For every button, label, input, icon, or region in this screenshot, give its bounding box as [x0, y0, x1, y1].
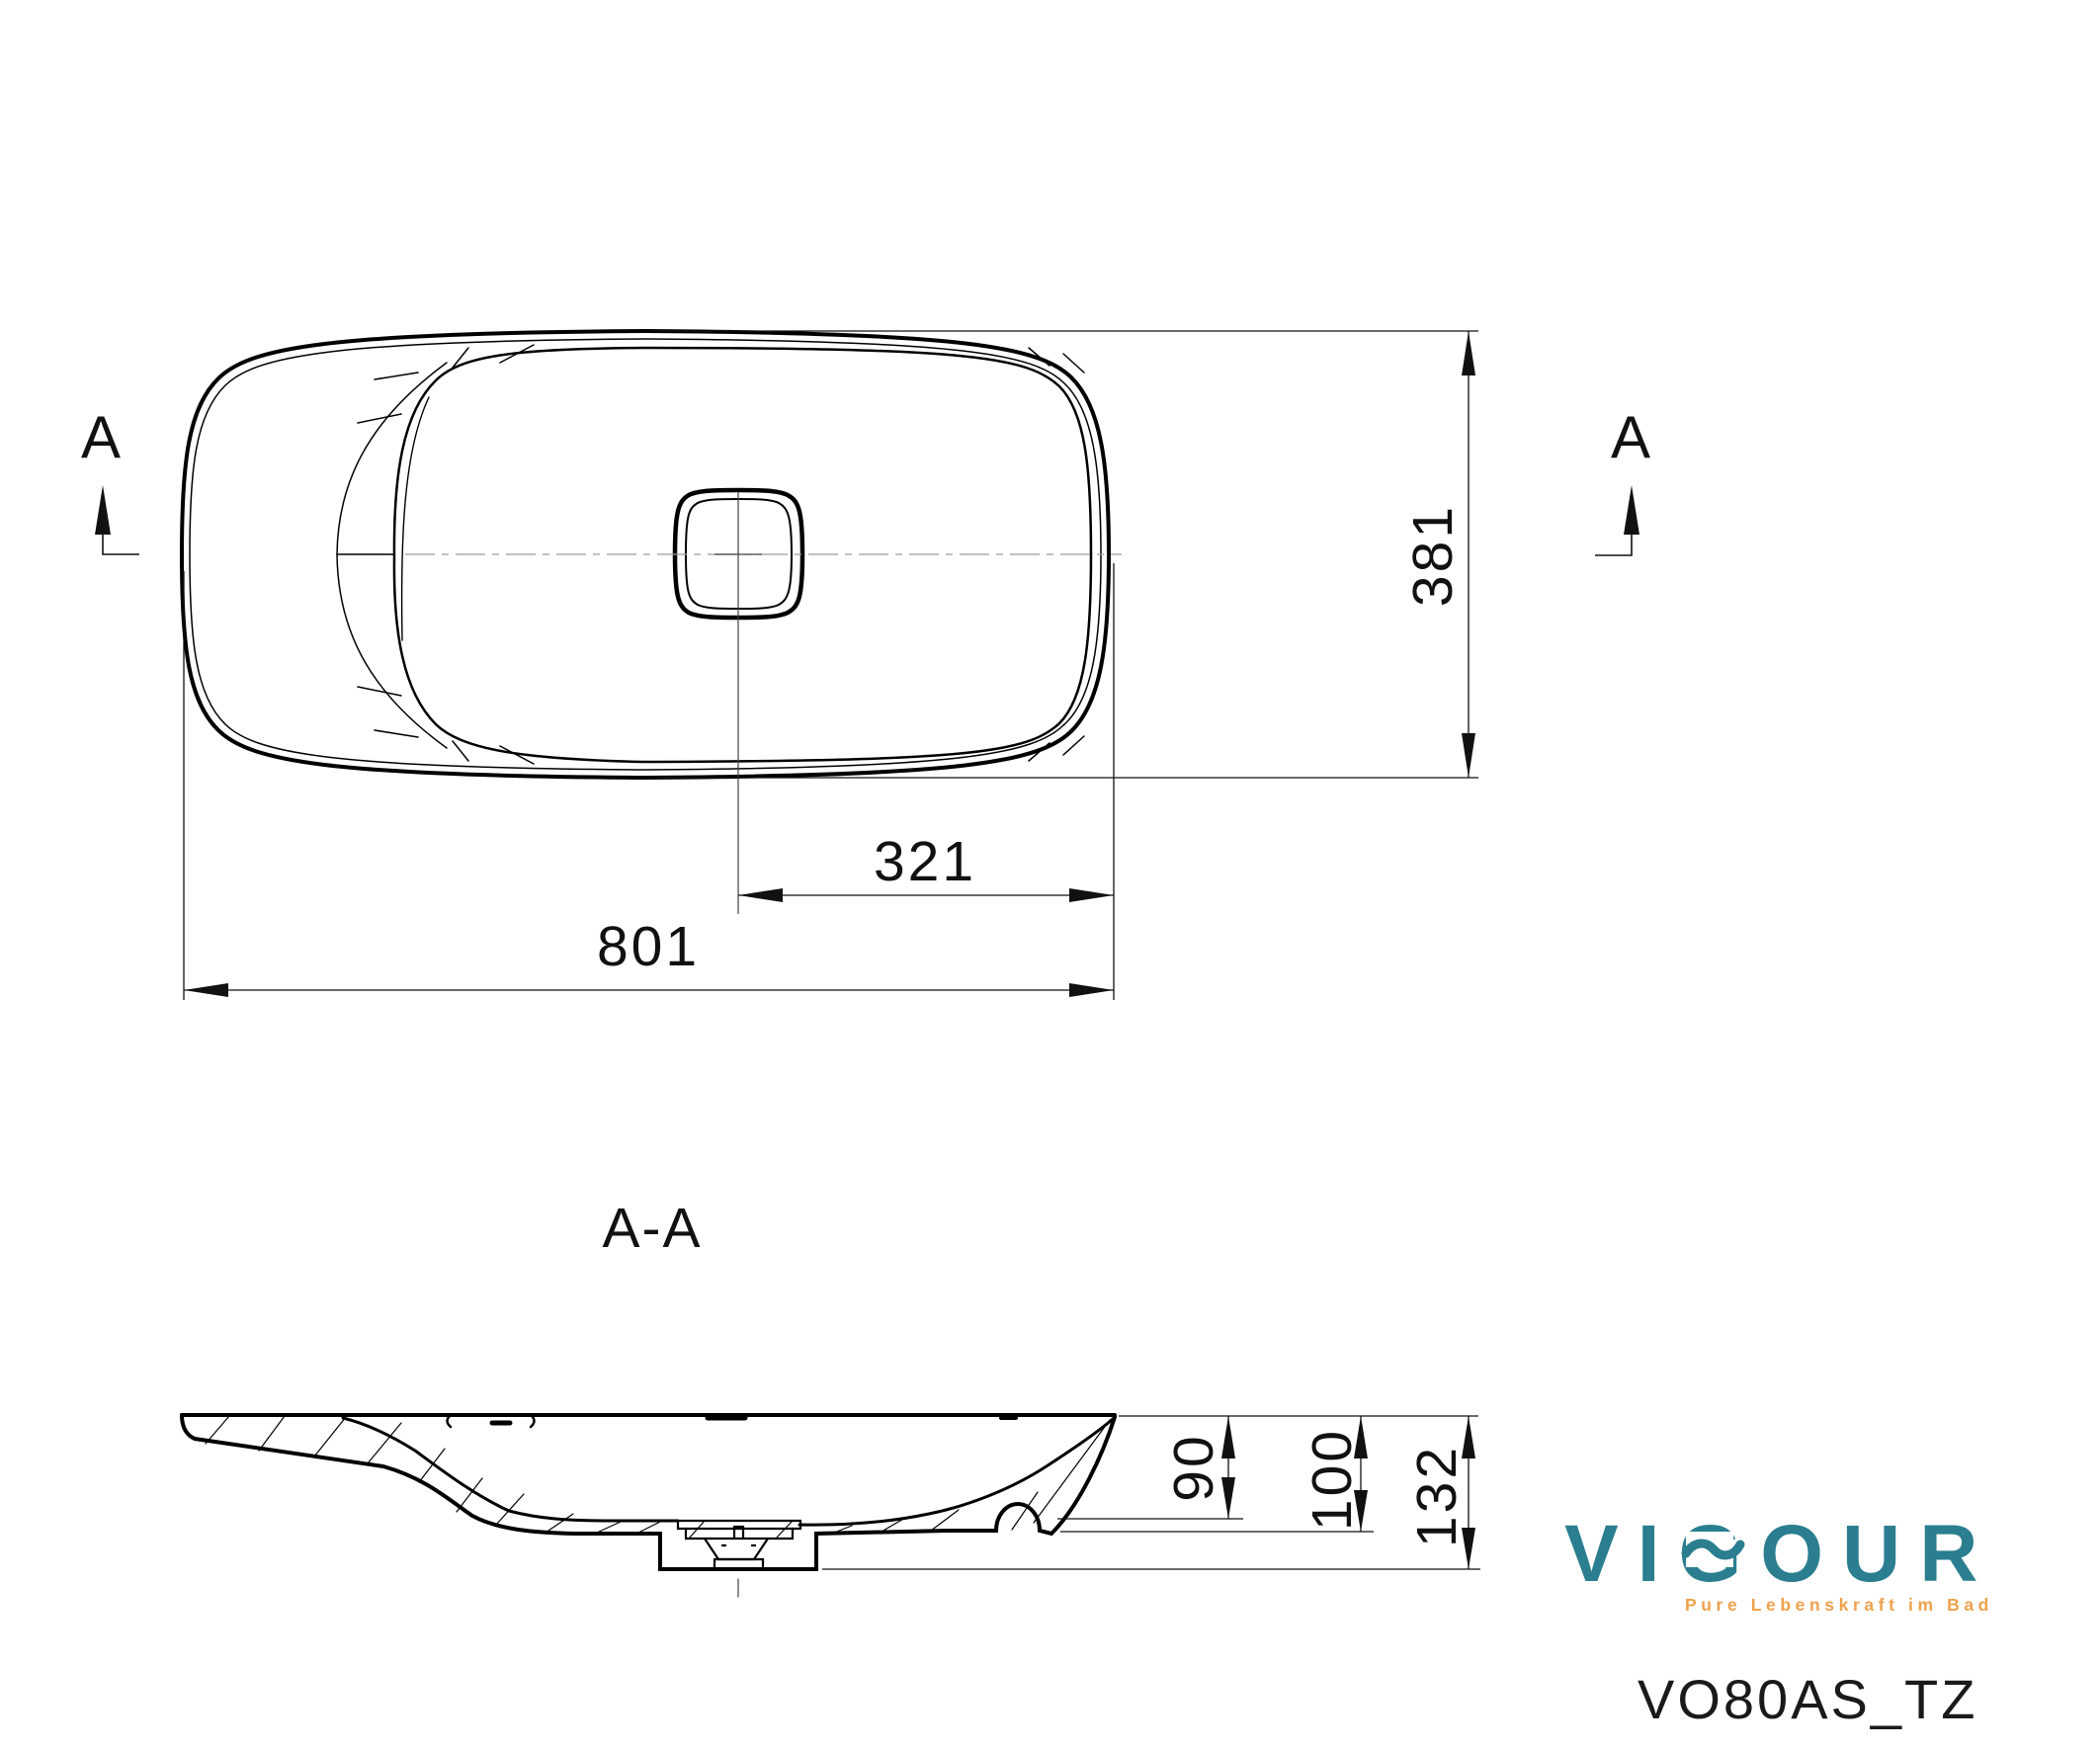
dim-90-label: 90: [1162, 1433, 1225, 1501]
section-title: A-A: [602, 1197, 702, 1260]
section-taphole-arc: [531, 1415, 535, 1427]
arrow-icon: [1069, 983, 1114, 997]
plan-centerlines: [405, 492, 1122, 914]
arrow-icon: [738, 888, 783, 902]
dim-381-label: 381: [1401, 504, 1465, 607]
section-arrow-right-icon: [1624, 485, 1639, 535]
arrow-icon: [1462, 733, 1475, 778]
arrow-icon: [184, 983, 228, 997]
dim-801-label: 801: [597, 915, 700, 978]
dim-132-label: 132: [1405, 1445, 1469, 1547]
section-inner-surface-right: [799, 1419, 1113, 1525]
section-taphole-arc: [448, 1415, 452, 1427]
section-marker-right-label: A: [1611, 404, 1650, 470]
brand-logo: VIGOUR Pure Lebenskraft im Bad: [1564, 1509, 1996, 1615]
section-leader-right: [1595, 535, 1632, 555]
drawing-canvas: A A 801 321 381 A-A: [0, 0, 2100, 1750]
plan-shelf-band: [337, 363, 447, 748]
drawing-sheet: A A 801 321 381 A-A: [0, 0, 2100, 1750]
section-arrow-left-icon: [95, 485, 111, 535]
section-leader-left: [103, 535, 139, 554]
dim-100-label: 100: [1301, 1428, 1364, 1531]
arrow-icon: [1069, 888, 1114, 902]
brand-logo-text: VIGOUR: [1564, 1509, 1996, 1599]
brand-tagline: Pure Lebenskraft im Bad: [1685, 1595, 1993, 1615]
section-marker-left-label: A: [81, 404, 121, 470]
dim-321-label: 321: [874, 830, 976, 893]
plan-dimensions: [184, 331, 1478, 1000]
section-outer-profile: [182, 1415, 1115, 1569]
model-code: VO80AS_TZ: [1638, 1668, 1977, 1730]
section-drain-assembly: [678, 1521, 800, 1569]
arrow-icon: [1462, 331, 1475, 375]
section-dimensions: [822, 1416, 1480, 1569]
